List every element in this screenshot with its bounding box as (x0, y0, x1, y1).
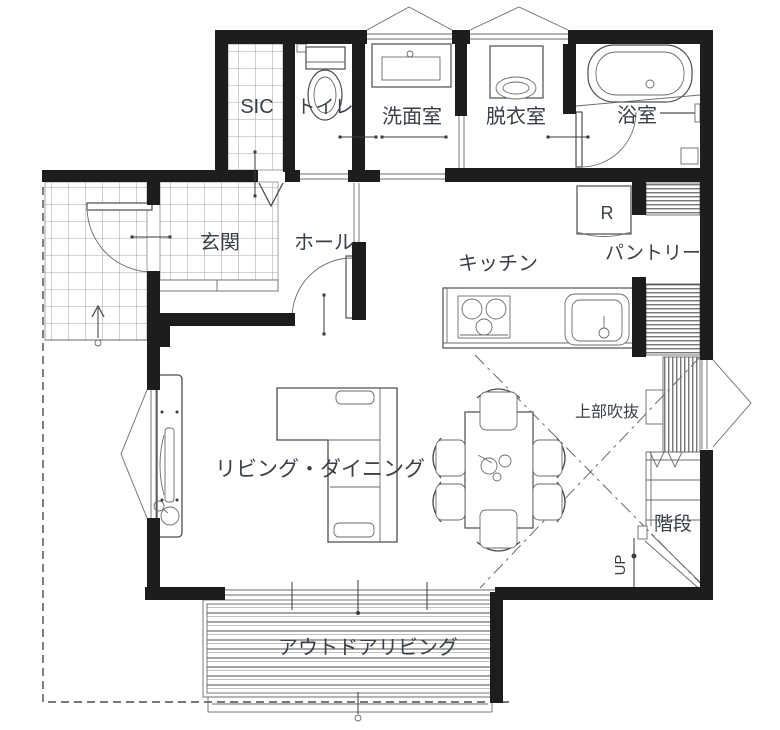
room-label-living-dining: リビング・ダイニング (215, 458, 425, 481)
dining-chair (477, 510, 520, 551)
bay-window-east (702, 358, 751, 449)
room-label-bathroom: 浴室 (617, 104, 657, 127)
kitchen-sink (565, 294, 629, 345)
stove (458, 296, 510, 338)
vanity-sink (372, 44, 451, 87)
pantry-shelf-top (646, 183, 700, 215)
label-refrigerator: R (601, 203, 614, 223)
dressing-sliding-door (459, 116, 464, 170)
stair-rail (646, 452, 651, 528)
room-label-washroom: 洗面室 (382, 105, 442, 128)
dining-chair (533, 482, 565, 522)
bench-side-table (646, 390, 663, 424)
bath-counter (681, 148, 698, 164)
bay-window-top-right (470, 7, 568, 39)
dining-chair (477, 389, 520, 430)
dining-chair (433, 438, 465, 478)
outdoor-deck (203, 600, 497, 721)
room-label-toilet: トイレ (296, 97, 353, 118)
washing-machine (490, 46, 543, 99)
room-label-pantry: パントリー (605, 243, 701, 264)
room-label-sic: SIC (240, 96, 273, 118)
label-up: UP (612, 555, 629, 576)
room-label-stairs: 階段 (654, 513, 692, 535)
floor-plan-page: SIC トイレ 洗面室 脱衣室 浴室 玄関 ホール キッチン パントリー リビン… (0, 0, 780, 730)
room-label-entrance: 玄関 (200, 231, 240, 254)
bay-window-top-left (367, 7, 452, 39)
dining-chair (533, 438, 565, 478)
bay-window-west (121, 390, 156, 518)
dining-chair (433, 482, 465, 522)
room-label-outdoor-living: アウトドアリビング (278, 636, 458, 659)
hall-door (292, 256, 353, 318)
break-marks (650, 452, 682, 467)
room-label-dressing: 脱衣室 (486, 105, 546, 128)
room-label-hall: ホール (294, 232, 354, 254)
toilet-sliding-door (300, 174, 348, 179)
kitchen-counter (443, 288, 633, 348)
entrance-step (153, 280, 278, 291)
hall-sliding-door (354, 183, 359, 242)
room-label-kitchen: キッチン (458, 253, 538, 275)
walls (42, 30, 713, 703)
tv-board (154, 375, 182, 537)
washroom-sliding-door (380, 174, 445, 179)
label-open-ceiling: 上部吹抜 (575, 403, 639, 421)
tv-icon (165, 428, 174, 502)
floor-plan: SIC トイレ 洗面室 脱衣室 浴室 玄関 ホール キッチン パントリー リビン… (0, 0, 780, 730)
window-bench (663, 357, 700, 452)
entrance-tiles (160, 182, 278, 280)
pantry-shelf-bottom (646, 284, 700, 355)
deck-step (208, 697, 492, 712)
dining-table-set (433, 389, 565, 551)
